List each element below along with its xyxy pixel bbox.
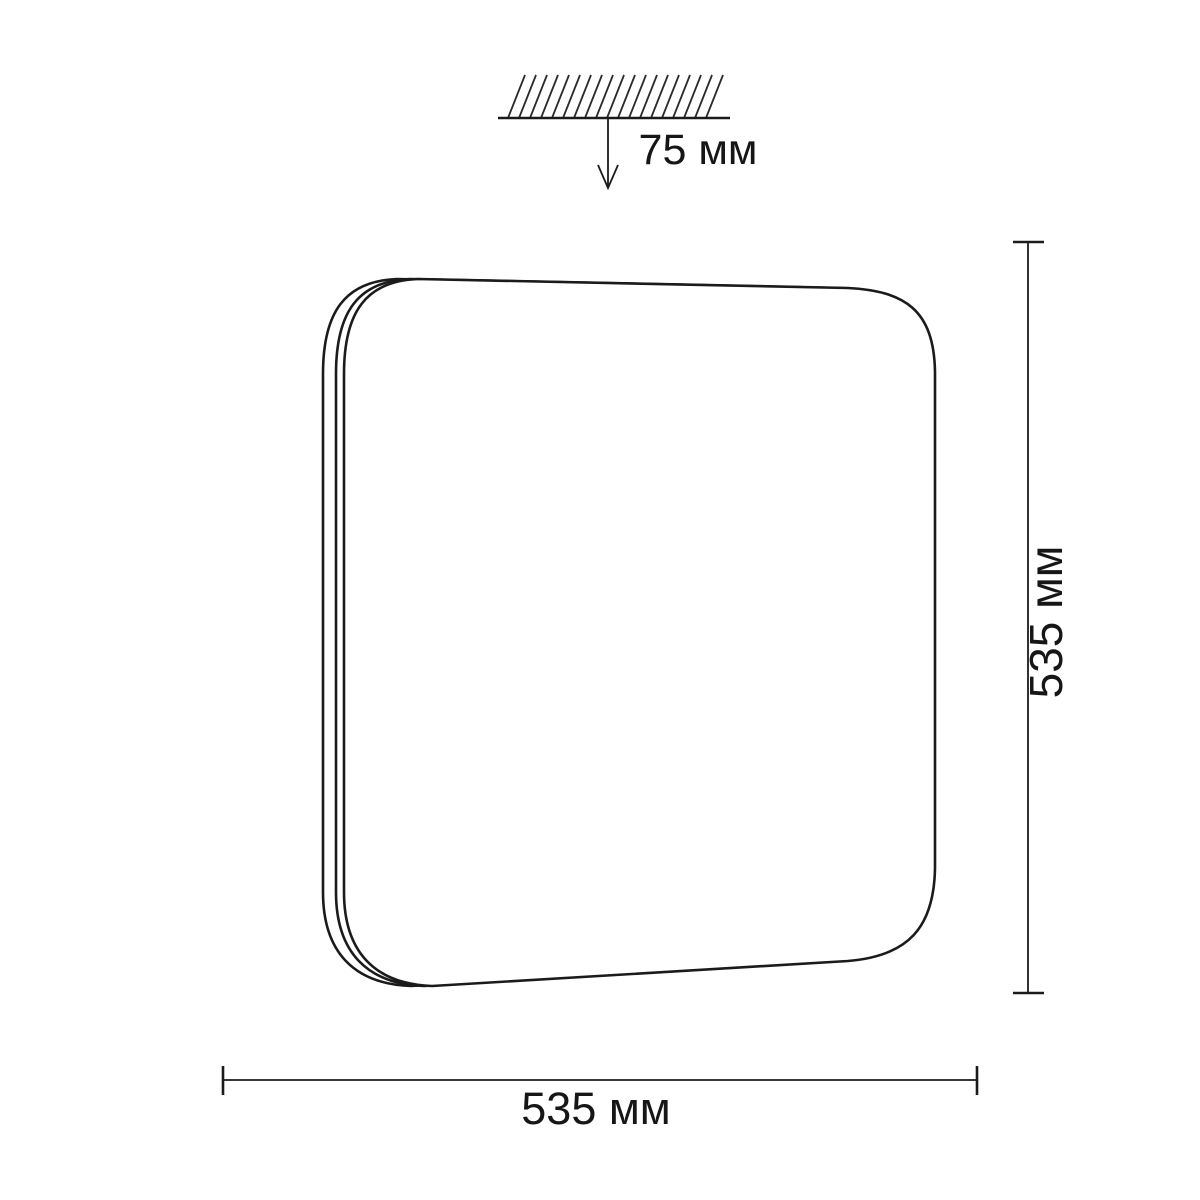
ceiling-symbol <box>498 75 730 118</box>
height-dimension-label: 535 мм <box>1020 546 1072 699</box>
width-dimension-label: 535 мм <box>521 1083 670 1134</box>
fixture-drawing <box>323 279 935 986</box>
height-dimension: 535 мм <box>1013 242 1072 993</box>
width-dimension: 535 мм <box>223 1066 977 1134</box>
offset-arrow-icon <box>598 118 618 188</box>
ceiling-offset-label: 75 мм <box>639 126 758 174</box>
fixture-front-face <box>344 279 935 986</box>
dimension-diagram: 75 мм 535 мм 535 мм <box>0 0 1200 1200</box>
diagram-svg: 75 мм 535 мм 535 мм <box>0 0 1200 1200</box>
ceiling-hatch-lines <box>508 75 723 118</box>
